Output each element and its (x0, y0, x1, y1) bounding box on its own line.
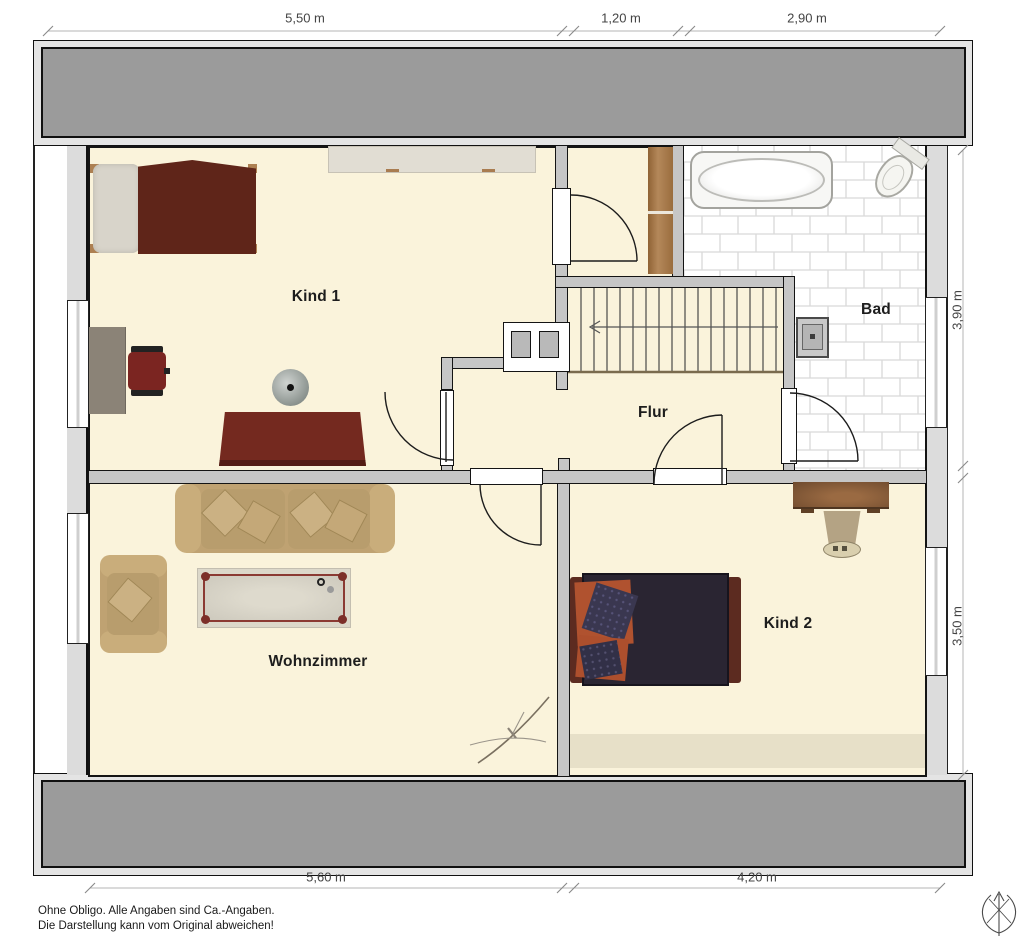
door-swing-kind1 (385, 392, 453, 462)
disclaimer-text: Ohne Obligo. Alle Angaben sind Ca.-Angab… (38, 904, 275, 933)
dim-right-2: 3,50 m (950, 606, 965, 646)
dim-right-1: 3,90 m (950, 290, 965, 330)
door-swing-bad (790, 393, 858, 461)
annotation-layer (0, 0, 1024, 947)
disclaimer-line-2: Die Darstellung kann vom Original abweic… (38, 919, 275, 934)
dim-top-2: 1,20 m (601, 11, 641, 26)
dimension-lines (48, 31, 963, 888)
room-label-bad: Bad (861, 301, 891, 319)
room-label-kind1: Kind 1 (292, 288, 341, 306)
disclaimer-line-1: Ohne Obligo. Alle Angaben sind Ca.-Angab… (38, 904, 275, 919)
dim-bottom-2: 4,20 m (737, 870, 777, 885)
room-label-flur: Flur (638, 404, 668, 422)
floor-plan: Kind 1 Bad Flur Wohnzimmer Kind 2 5,50 m… (0, 0, 1024, 947)
dimension-ticks (43, 26, 968, 893)
north-arrow-icon (982, 892, 1015, 936)
room-label-wohnzimmer: Wohnzimmer (268, 653, 367, 671)
plant-twig (470, 697, 549, 763)
door-swing-vestibule (571, 195, 637, 261)
dim-top-3: 2,90 m (787, 11, 827, 26)
dim-top-1: 5,50 m (285, 11, 325, 26)
room-label-kind2: Kind 2 (764, 615, 813, 633)
door-swing-kind2 (654, 415, 722, 484)
dim-bottom-1: 5,60 m (306, 870, 346, 885)
door-swing-wohnzimmer (480, 484, 541, 545)
